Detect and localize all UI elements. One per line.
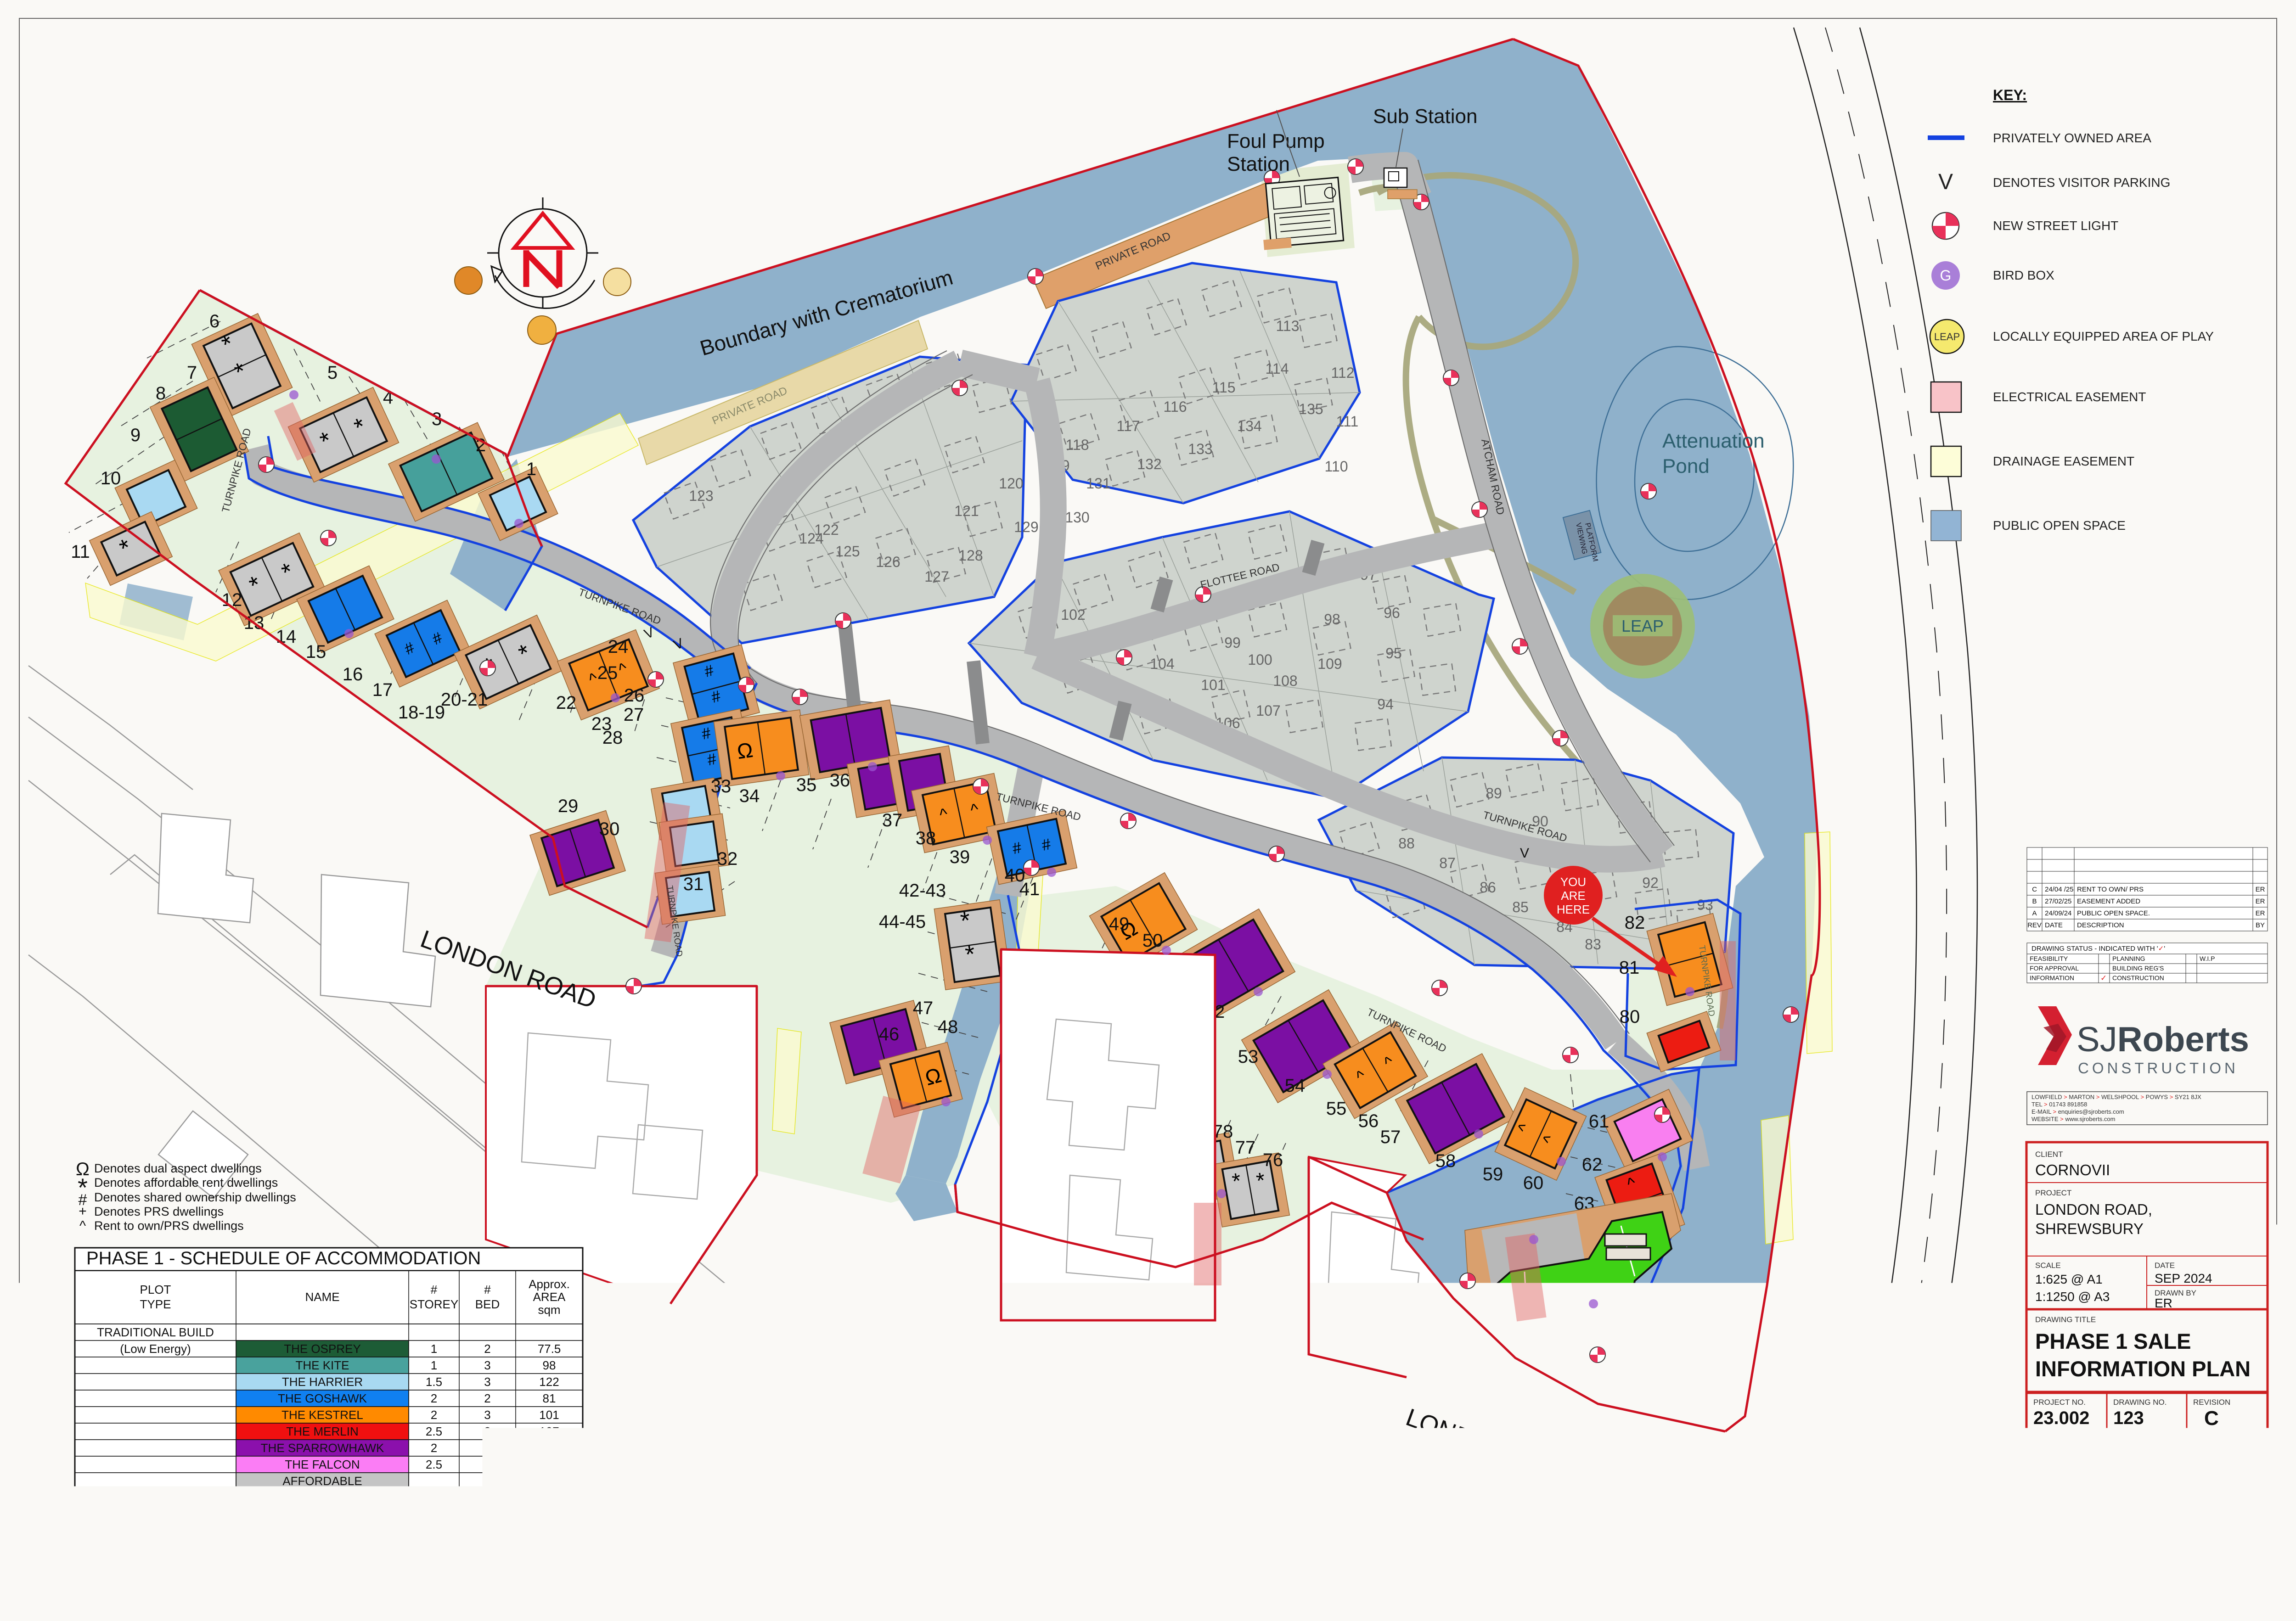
svg-text:39: 39 <box>950 847 970 867</box>
svg-text:1: 1 <box>484 1507 490 1521</box>
svg-text:44-45: 44-45 <box>879 912 926 932</box>
svg-text:CLIENT: CLIENT <box>2035 1150 2063 1159</box>
svg-text:REV: REV <box>2027 921 2042 929</box>
svg-text:NOTES:: NOTES: <box>2032 1439 2057 1447</box>
svg-text:DENOTES VISITOR PARKING: DENOTES VISITOR PARKING <box>1993 175 2170 190</box>
svg-text:7: 7 <box>187 363 197 383</box>
svg-text:5: 5 <box>327 363 338 383</box>
svg-text:LEAP: LEAP <box>1934 331 1960 342</box>
svg-text:NAME: NAME <box>305 1290 339 1304</box>
svg-text:76: 76 <box>543 1524 556 1537</box>
svg-text:128: 128 <box>958 547 983 564</box>
svg-text:70: 70 <box>543 1540 556 1554</box>
svg-text:31: 31 <box>683 874 704 894</box>
svg-text:DATE: DATE <box>2045 921 2063 929</box>
svg-text:THE GOSHAWK: THE GOSHAWK <box>278 1391 367 1405</box>
svg-text:(Low Energy): (Low Energy) <box>120 1342 191 1356</box>
svg-text:INFORMATION: INFORMATION <box>2030 974 2074 982</box>
svg-text:#: # <box>431 1283 438 1296</box>
svg-text:114: 114 <box>1265 360 1289 377</box>
svg-text:87: 87 <box>1439 855 1456 871</box>
svg-text:PHASE 1 - SCHEDULE OF ACCOMMOD: PHASE 1 - SCHEDULE OF ACCOMMODATION <box>86 1248 481 1268</box>
svg-text:81: 81 <box>543 1391 556 1405</box>
svg-text:Vat No. 870 1768 14: Vat No. 870 1768 14 <box>2032 1586 2099 1594</box>
svg-text:125: 125 <box>835 543 860 560</box>
svg-text:3: 3 <box>484 1408 490 1422</box>
svg-text:Foul Pump: Foul Pump <box>1227 130 1325 152</box>
svg-text:PARTY WITHOUT OUR WRITTEN PERM: PARTY WITHOUT OUR WRITTEN PERMISSION. <box>2032 1535 2185 1542</box>
svg-text:BED: BED <box>475 1297 500 1311</box>
svg-text:DESCRIPTION: DESCRIPTION <box>2077 921 2124 929</box>
svg-text:2.5: 2.5 <box>426 1458 442 1471</box>
svg-text:1: 1 <box>431 1507 437 1521</box>
svg-text:30: 30 <box>599 819 620 839</box>
svg-text:76: 76 <box>1263 1150 1283 1170</box>
svg-text:108: 108 <box>1273 673 1297 689</box>
svg-text:W.I.P: W.I.P <box>2200 955 2215 962</box>
svg-text:37: 37 <box>882 810 903 830</box>
svg-text:109: 109 <box>1317 656 1342 672</box>
svg-text:Station: Station <box>1227 153 1290 175</box>
svg-text:4: 4 <box>484 1458 490 1471</box>
svg-text:61: 61 <box>1589 1111 1609 1132</box>
svg-text:DRAWING NO.: DRAWING NO. <box>2113 1398 2167 1407</box>
svg-text:102: 102 <box>1061 606 1085 623</box>
svg-text:C: C <box>2032 886 2037 893</box>
svg-text:9: 9 <box>130 425 141 445</box>
svg-text:SCALE: SCALE <box>2035 1261 2061 1270</box>
svg-text:KEY:: KEY: <box>1993 87 2027 103</box>
svg-text:98: 98 <box>1324 611 1340 628</box>
svg-text:36: 36 <box>830 770 850 791</box>
svg-text:LOWFIELD > MARTON > WELSHPOOL: LOWFIELD > MARTON > WELSHPOOL > POWYS > … <box>2032 1094 2201 1100</box>
svg-text:86: 86 <box>1480 879 1496 896</box>
svg-text:ER: ER <box>2155 1296 2172 1310</box>
svg-text:8: 8 <box>156 383 166 404</box>
svg-text:THE KESTREL: THE KESTREL <box>281 1408 363 1422</box>
svg-text:24/09/24: 24/09/24 <box>2045 909 2071 917</box>
svg-text:Part of the SJ Roberts Group: Part of the SJ Roberts Group <box>2216 1588 2281 1593</box>
svg-text:Sub Station: Sub Station <box>1373 105 1478 128</box>
svg-text:14: 14 <box>276 627 297 647</box>
svg-text:3: 3 <box>484 1375 490 1389</box>
svg-text:2.5: 2.5 <box>426 1425 442 1438</box>
svg-text:RENT TO OWN/ PRS: RENT TO OWN/ PRS <box>2077 886 2144 893</box>
svg-text:DRAWING TITLE: DRAWING TITLE <box>2035 1315 2096 1324</box>
svg-text:126: 126 <box>876 554 900 570</box>
svg-text:1: 1 <box>526 459 536 479</box>
svg-text:127: 127 <box>924 568 949 585</box>
svg-text:E-MAIL > enquiries@sjrobert: E-MAIL > enquiries@sjroberts.com <box>2032 1108 2124 1115</box>
svg-text:PLANNING: PLANNING <box>2112 955 2145 962</box>
svg-text:56: 56 <box>1358 1111 1379 1131</box>
svg-text:1: 1 <box>431 1358 437 1372</box>
svg-text:Registration No: 3153914: Registration No: 3153914 <box>2032 1577 2115 1585</box>
svg-text:2: 2 <box>431 1408 437 1422</box>
svg-text:107: 107 <box>1256 702 1280 719</box>
svg-text:112: 112 <box>1331 365 1354 381</box>
svg-text:121: 121 <box>954 503 979 519</box>
svg-text:ANY ERRORS, OMISSIONS OR DISCR: ANY ERRORS, OMISSIONS OR DISCREPANCIES A… <box>2032 1485 2275 1493</box>
svg-text:122: 122 <box>539 1375 559 1389</box>
svg-text:REVISION: REVISION <box>2193 1398 2230 1407</box>
svg-text:62: 62 <box>1582 1155 1603 1175</box>
svg-text:18-19: 18-19 <box>398 702 445 723</box>
svg-text:AREA: AREA <box>533 1290 566 1304</box>
svg-text:2: 2 <box>431 1391 437 1405</box>
svg-text:28: 28 <box>602 728 623 748</box>
svg-text:25: 25 <box>597 663 618 683</box>
svg-text:1.5: 1.5 <box>426 1375 442 1389</box>
svg-text:DRAWING STATUS - INDICATED WIT: DRAWING STATUS - INDICATED WITH '✓' <box>2032 945 2165 953</box>
svg-text:26: 26 <box>624 685 645 706</box>
svg-text:ELECTRICAL EASEMENT: ELECTRICAL EASEMENT <box>1993 390 2146 404</box>
svg-text:ER: ER <box>2256 909 2265 917</box>
svg-text:THE MERLIN: THE MERLIN <box>286 1425 358 1438</box>
svg-text:2: 2 <box>484 1524 490 1537</box>
svg-text:BY: BY <box>2256 921 2265 929</box>
svg-text:55: 55 <box>1326 1099 1347 1119</box>
svg-text:CONSTRUCTION: CONSTRUCTION <box>2112 974 2164 982</box>
svg-text:GROUP. IT MUST NOT BE REPRODUC: GROUP. IT MUST NOT BE REPRODUCED NOR AME… <box>2032 1526 2258 1534</box>
svg-text:22: 22 <box>556 693 577 713</box>
svg-text:27: 27 <box>624 705 644 725</box>
svg-text:34: 34 <box>739 786 760 806</box>
svg-text:THE HARRIER: THE HARRIER <box>282 1375 363 1389</box>
svg-text:131: 131 <box>539 1458 559 1471</box>
svg-text:16: 16 <box>343 664 363 684</box>
svg-text:PRIVATE RENT - A: PRIVATE RENT - A <box>271 1507 374 1521</box>
svg-text:2: 2 <box>484 1540 490 1554</box>
svg-text:sqm: sqm <box>538 1303 560 1317</box>
svg-text:SJ ROBERTS CONSTRUCTION LTD:: SJ ROBERTS CONSTRUCTION LTD: <box>2032 1559 2156 1566</box>
svg-text:89: 89 <box>1486 785 1502 802</box>
svg-text:1: 1 <box>431 1524 437 1537</box>
svg-text:THE ATTENTION OF SJ ROBERTS IM: THE ATTENTION OF SJ ROBERTS IMMEDIATELY. <box>2032 1493 2190 1501</box>
svg-text:11: 11 <box>71 542 90 562</box>
svg-text:3: 3 <box>484 1358 490 1372</box>
svg-text:^: ^ <box>79 1218 86 1234</box>
svg-text:Attenuation: Attenuation <box>1662 430 1765 452</box>
svg-text:123: 123 <box>2113 1408 2144 1428</box>
svg-text:PUBLIC OPEN SPACE: PUBLIC OPEN SPACE <box>1993 518 2126 533</box>
svg-text:2: 2 <box>431 1441 437 1455</box>
svg-text:53: 53 <box>1238 1047 1259 1067</box>
svg-text:6: 6 <box>209 311 219 331</box>
svg-text:2: 2 <box>484 1391 490 1405</box>
svg-text:TEL > 01743 891858: TEL > 01743 891858 <box>2032 1101 2087 1108</box>
svg-text:1: 1 <box>431 1540 437 1554</box>
svg-text:CONSTRUCTION: CONSTRUCTION <box>2078 1060 2239 1077</box>
svg-text:46: 46 <box>879 1024 900 1044</box>
svg-text:EASEMENT ADDED: EASEMENT ADDED <box>2077 897 2140 905</box>
svg-text:29: 29 <box>558 796 579 816</box>
svg-text:42-43: 42-43 <box>899 881 946 901</box>
svg-text:PROJECT: PROJECT <box>2035 1189 2071 1197</box>
svg-text:48: 48 <box>938 1017 958 1037</box>
svg-text:ER: ER <box>2256 886 2265 893</box>
svg-text:23.002: 23.002 <box>2033 1408 2089 1428</box>
svg-text:57: 57 <box>1380 1127 1401 1147</box>
svg-text:Approx.: Approx. <box>529 1277 570 1291</box>
svg-text:98: 98 <box>543 1358 556 1372</box>
svg-text:132: 132 <box>1137 456 1161 472</box>
svg-text:1:1250 @ A3: 1:1250 @ A3 <box>2035 1290 2110 1304</box>
svg-text:THE FALCON: THE FALCON <box>285 1458 360 1471</box>
svg-text:41: 41 <box>1019 879 1040 899</box>
svg-text:PLOT: PLOT <box>140 1283 171 1296</box>
svg-text:133: 133 <box>1188 441 1212 457</box>
svg-text:59: 59 <box>1483 1164 1503 1184</box>
svg-text:A: A <box>2032 909 2037 917</box>
svg-text:Rent to own/PRS dwellings: Rent to own/PRS dwellings <box>94 1219 244 1233</box>
svg-text:77.5: 77.5 <box>538 1342 561 1356</box>
svg-text:LONDON ROAD,: LONDON ROAD, <box>2035 1201 2152 1218</box>
svg-text:104: 104 <box>1150 656 1174 672</box>
svg-text:THE SPARROWHAWK: THE SPARROWHAWK <box>261 1441 384 1455</box>
svg-text:HERE: HERE <box>1557 903 1590 916</box>
svg-text:#: # <box>484 1283 491 1296</box>
svg-text:CORNOVII: CORNOVII <box>2035 1161 2110 1178</box>
svg-text:3: 3 <box>484 1425 490 1438</box>
svg-text:INFORMATION PLAN: INFORMATION PLAN <box>2035 1357 2251 1381</box>
svg-text:107: 107 <box>539 1425 559 1438</box>
svg-text:60: 60 <box>1523 1173 1544 1193</box>
svg-text:DATE: DATE <box>2155 1261 2175 1270</box>
svg-text:+: + <box>79 1204 87 1219</box>
svg-text:LEAP: LEAP <box>1621 617 1664 635</box>
svg-text:113: 113 <box>1276 318 1299 334</box>
svg-text:V: V <box>1520 846 1529 861</box>
svg-text:DO NOT SCALE OFF THIS DRAWING.: DO NOT SCALE OFF THIS DRAWING. <box>2032 1470 2153 1478</box>
svg-text:33: 33 <box>711 776 732 796</box>
svg-text:Ω: Ω <box>736 738 754 763</box>
svg-text:SEP 2024: SEP 2024 <box>2155 1271 2212 1285</box>
svg-text:99: 99 <box>1224 634 1241 651</box>
svg-text:Denotes affordable rent dwelli: Denotes affordable rent dwellings <box>94 1176 278 1189</box>
svg-text:Denotes PRS dwellings: Denotes PRS dwellings <box>94 1205 224 1218</box>
svg-text:G: G <box>1940 267 1952 284</box>
svg-text:50: 50 <box>1142 931 1163 951</box>
svg-text:SHREWSBURY: SHREWSBURY <box>2035 1220 2144 1237</box>
svg-text:C: C <box>2204 1407 2219 1430</box>
svg-text:82: 82 <box>1625 913 1645 933</box>
svg-text:54: 54 <box>1285 1076 1306 1096</box>
svg-text:Denotes shared ownership dwell: Denotes shared ownership dwellings <box>94 1190 296 1204</box>
svg-text:38: 38 <box>916 828 936 848</box>
svg-text:ANY WORKS OR FABRICATION.: ANY WORKS OR FABRICATION. <box>2032 1456 2135 1464</box>
svg-text:100: 100 <box>1248 651 1272 668</box>
svg-text:94: 94 <box>1377 696 1394 712</box>
svg-text:10: 10 <box>101 468 121 488</box>
svg-text:PRIVATELY OWNED AREA: PRIVATELY OWNED AREA <box>1993 131 2151 145</box>
svg-text:✓: ✓ <box>2100 974 2107 982</box>
svg-text:V: V <box>1938 170 1953 194</box>
svg-text:116: 116 <box>1163 398 1187 415</box>
svg-text:SJRoberts: SJRoberts <box>2077 1020 2249 1059</box>
svg-text:92: 92 <box>1642 875 1659 891</box>
svg-text:FOR APPROVAL: FOR APPROVAL <box>2030 965 2079 972</box>
svg-text:27/02/25: 27/02/25 <box>2045 897 2071 905</box>
svg-text:85: 85 <box>1512 899 1529 915</box>
svg-text:17: 17 <box>372 680 393 700</box>
svg-text:THE OSPREY: THE OSPREY <box>284 1342 361 1356</box>
svg-text:93: 93 <box>1697 897 1713 913</box>
svg-text:134: 134 <box>1237 418 1261 434</box>
svg-text:131: 131 <box>1086 475 1110 492</box>
svg-text:24: 24 <box>608 637 629 657</box>
svg-text:58: 58 <box>1435 1151 1456 1171</box>
svg-text:115: 115 <box>540 1441 558 1455</box>
svg-text:110: 110 <box>1324 458 1348 475</box>
svg-text:96: 96 <box>1384 605 1400 621</box>
svg-text:ALL DIMENSIONS TO BE CHECKED A: ALL DIMENSIONS TO BE CHECKED AND CONFIRM… <box>2032 1447 2271 1455</box>
svg-text:115: 115 <box>1212 379 1235 396</box>
svg-text:PROJECT NO.: PROJECT NO. <box>2033 1398 2086 1407</box>
svg-text:1:625 @ A1: 1:625 @ A1 <box>2035 1272 2103 1286</box>
svg-text:88: 88 <box>1398 835 1415 852</box>
svg-text:129: 129 <box>1014 519 1038 535</box>
svg-text:2: 2 <box>484 1342 490 1356</box>
svg-text:Apartments: Apartments <box>125 1507 186 1521</box>
svg-text:WEBSITE > www.sjroberts.com: WEBSITE > www.sjroberts.com <box>2032 1116 2115 1122</box>
svg-text:101: 101 <box>1201 677 1225 693</box>
svg-text:B: B <box>2032 897 2037 905</box>
svg-text:ER: ER <box>2256 897 2265 905</box>
svg-text:32: 32 <box>717 849 738 869</box>
svg-text:101: 101 <box>539 1408 559 1422</box>
svg-text:120: 120 <box>999 475 1023 492</box>
svg-text:80: 80 <box>1620 1007 1640 1027</box>
svg-text:THE KITE: THE KITE <box>295 1358 349 1372</box>
svg-text:49: 49 <box>1109 914 1130 934</box>
svg-text:95: 95 <box>1385 645 1402 662</box>
svg-text:15: 15 <box>306 642 326 662</box>
svg-text:77: 77 <box>1235 1138 1256 1158</box>
svg-text:118: 118 <box>1065 437 1089 453</box>
svg-text:20-21: 20-21 <box>441 690 488 710</box>
svg-text:FEASIBILITY: FEASIBILITY <box>2030 955 2068 962</box>
svg-text:130: 130 <box>1065 509 1089 526</box>
svg-text:122: 122 <box>814 522 838 538</box>
svg-text:24/04 /25: 24/04 /25 <box>2045 886 2074 893</box>
svg-text:BIRD BOX: BIRD BOX <box>1993 268 2054 282</box>
svg-text:135: 135 <box>1299 401 1323 417</box>
svg-text:AFFORDABLE: AFFORDABLE <box>282 1474 362 1488</box>
svg-text:Registered in England & Wales: Registered in England & Wales <box>2032 1568 2133 1576</box>
svg-text:PRIVATE RENT - C: PRIVATE RENT - C <box>270 1540 375 1554</box>
svg-text:4: 4 <box>484 1441 490 1455</box>
svg-text:STOREY: STOREY <box>410 1297 458 1311</box>
svg-text:PUBLIC OPEN SPACE.: PUBLIC OPEN SPACE. <box>2077 909 2150 917</box>
svg-text:47: 47 <box>913 998 934 1018</box>
svg-text:50: 50 <box>543 1507 556 1521</box>
svg-text:DRAINAGE EASEMENT: DRAINAGE EASEMENT <box>1993 454 2134 468</box>
svg-text:123: 123 <box>689 488 713 504</box>
svg-text:Denotes dual aspect dwellings: Denotes dual aspect dwellings <box>94 1161 262 1175</box>
svg-text:© THE CONTENTS OF THIS DRAWING: © THE CONTENTS OF THIS DRAWING ARE THE C… <box>2032 1518 2286 1526</box>
svg-text:LOCALLY EQUIPPED AREA OF PLAY: LOCALLY EQUIPPED AREA OF PLAY <box>1993 329 2214 343</box>
svg-text:BUILDING REG'S: BUILDING REG'S <box>2112 965 2164 972</box>
svg-text:PHASE 1 SALE: PHASE 1 SALE <box>2035 1329 2191 1353</box>
svg-text:PRIVATE RENT - B: PRIVATE RENT - B <box>270 1524 374 1537</box>
svg-text:117: 117 <box>1116 418 1140 434</box>
svg-text:1: 1 <box>431 1342 437 1356</box>
svg-text:35: 35 <box>796 775 817 795</box>
svg-text:111: 111 <box>1336 413 1359 430</box>
svg-text:Pond: Pond <box>1662 455 1710 477</box>
svg-text:YOU: YOU <box>1560 875 1586 889</box>
svg-text:TRADITIONAL BUILD: TRADITIONAL BUILD <box>97 1325 214 1339</box>
svg-text:NEW STREET LIGHT: NEW STREET LIGHT <box>1993 219 2118 233</box>
svg-text:TYPE: TYPE <box>140 1297 171 1311</box>
svg-text:83: 83 <box>1585 936 1601 953</box>
svg-text:ARE: ARE <box>1561 889 1585 903</box>
svg-text:81: 81 <box>1619 958 1640 978</box>
